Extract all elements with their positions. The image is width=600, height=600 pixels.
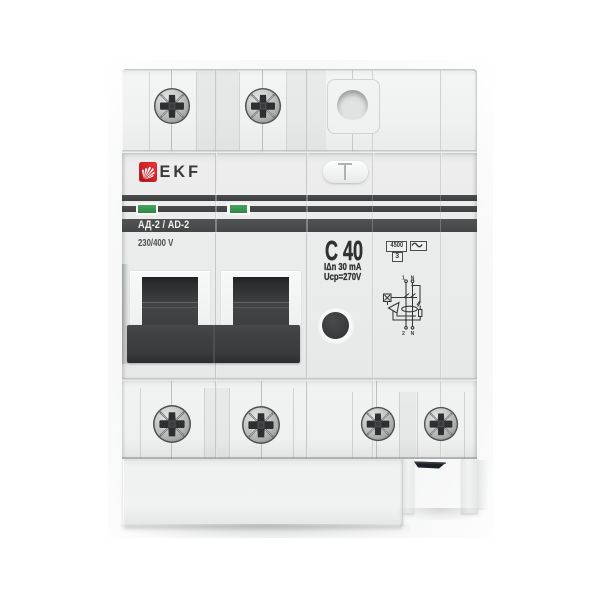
svg-text:N: N — [410, 331, 414, 337]
svg-text:1: 1 — [402, 275, 405, 281]
svg-text:2: 2 — [402, 331, 405, 337]
svg-text:N: N — [410, 275, 414, 281]
